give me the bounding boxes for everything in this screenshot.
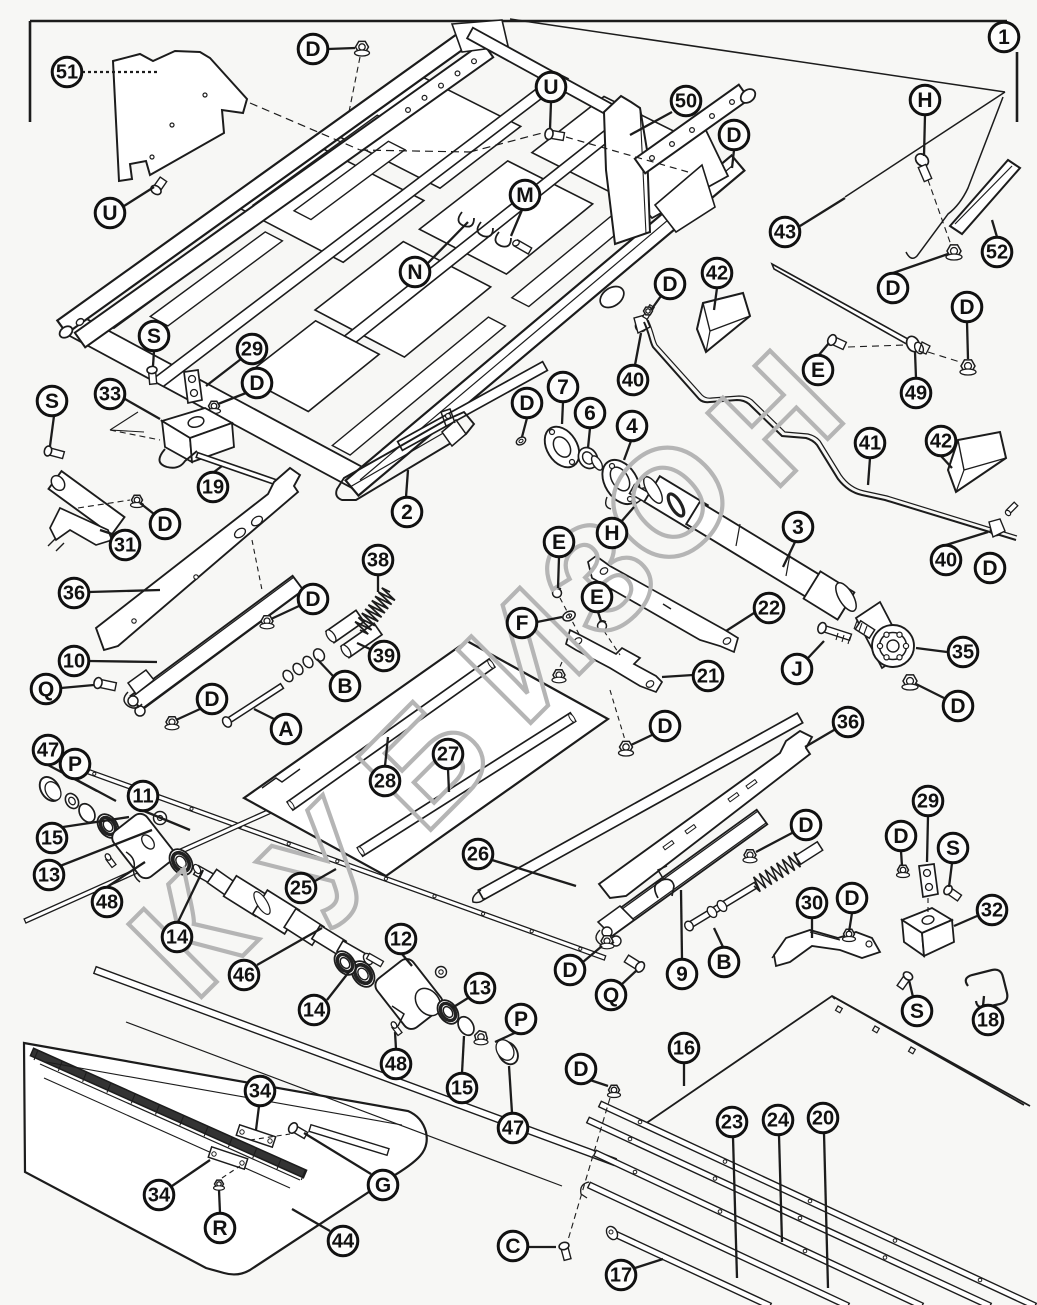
svg-text:D: D — [249, 372, 264, 395]
svg-text:D: D — [657, 715, 672, 738]
svg-text:48: 48 — [96, 892, 118, 914]
svg-text:B: B — [337, 675, 352, 698]
svg-text:35: 35 — [952, 642, 974, 664]
svg-text:13: 13 — [469, 978, 491, 1000]
svg-text:M: M — [516, 184, 534, 207]
svg-text:10: 10 — [63, 651, 85, 673]
svg-text:3: 3 — [792, 516, 804, 539]
svg-text:30: 30 — [801, 893, 823, 915]
svg-text:38: 38 — [367, 550, 389, 572]
svg-text:26: 26 — [467, 844, 489, 866]
svg-text:D: D — [204, 688, 219, 711]
svg-text:18: 18 — [977, 1010, 999, 1032]
svg-text:P: P — [68, 753, 82, 776]
svg-text:48: 48 — [385, 1054, 407, 1076]
svg-text:D: D — [157, 513, 172, 536]
svg-text:25: 25 — [290, 878, 312, 900]
svg-text:28: 28 — [374, 771, 396, 793]
svg-text:13: 13 — [38, 865, 60, 887]
svg-text:U: U — [102, 202, 117, 225]
svg-text:32: 32 — [981, 900, 1003, 922]
svg-text:27: 27 — [437, 744, 459, 766]
svg-text:40: 40 — [935, 550, 957, 572]
svg-text:39: 39 — [373, 646, 395, 668]
svg-text:15: 15 — [451, 1078, 473, 1100]
svg-text:2: 2 — [401, 501, 413, 524]
svg-text:J: J — [791, 658, 803, 681]
svg-text:47: 47 — [502, 1118, 524, 1140]
svg-text:33: 33 — [99, 384, 121, 406]
svg-text:12: 12 — [390, 929, 412, 951]
svg-text:D: D — [305, 38, 320, 61]
svg-text:41: 41 — [859, 433, 881, 455]
svg-text:D: D — [662, 273, 677, 296]
svg-text:34: 34 — [249, 1081, 272, 1103]
svg-text:14: 14 — [303, 1000, 326, 1022]
svg-text:29: 29 — [241, 339, 263, 361]
svg-text:34: 34 — [148, 1185, 171, 1207]
svg-text:17: 17 — [610, 1265, 632, 1287]
svg-text:D: D — [798, 814, 813, 837]
svg-text:20: 20 — [812, 1108, 834, 1130]
svg-text:S: S — [45, 390, 59, 413]
svg-text:B: B — [716, 951, 731, 974]
svg-text:4: 4 — [626, 415, 638, 438]
svg-text:D: D — [305, 588, 320, 611]
svg-text:N: N — [407, 261, 422, 284]
svg-text:D: D — [959, 296, 974, 319]
svg-text:23: 23 — [721, 1112, 743, 1134]
svg-text:H: H — [917, 89, 932, 112]
svg-text:E: E — [590, 586, 604, 609]
svg-text:D: D — [844, 887, 859, 910]
svg-text:16: 16 — [673, 1038, 695, 1060]
svg-text:44: 44 — [332, 1231, 355, 1253]
svg-text:S: S — [946, 837, 960, 860]
svg-text:C: C — [505, 1235, 520, 1258]
svg-text:Q: Q — [603, 984, 619, 1007]
svg-text:31: 31 — [114, 535, 136, 557]
svg-text:15: 15 — [41, 828, 63, 850]
svg-text:D: D — [982, 557, 997, 580]
svg-text:24: 24 — [767, 1110, 790, 1132]
svg-text:A: A — [278, 718, 293, 741]
svg-text:D: D — [573, 1058, 588, 1081]
svg-text:E: E — [552, 531, 566, 554]
svg-text:U: U — [543, 76, 558, 99]
svg-text:36: 36 — [837, 712, 859, 734]
svg-text:H: H — [604, 522, 619, 545]
svg-text:11: 11 — [132, 786, 153, 808]
svg-text:S: S — [147, 325, 161, 348]
svg-text:19: 19 — [202, 477, 224, 499]
svg-text:S: S — [910, 1000, 924, 1023]
svg-text:R: R — [212, 1217, 227, 1240]
svg-text:36: 36 — [63, 583, 85, 605]
svg-text:D: D — [726, 124, 741, 147]
svg-text:46: 46 — [233, 965, 255, 987]
svg-text:14: 14 — [166, 927, 189, 949]
svg-text:E: E — [811, 359, 825, 382]
svg-text:D: D — [519, 392, 534, 415]
svg-text:F: F — [516, 612, 529, 635]
svg-text:51: 51 — [56, 62, 78, 84]
svg-text:52: 52 — [986, 242, 1008, 264]
svg-text:G: G — [375, 1174, 391, 1197]
svg-text:D: D — [950, 695, 965, 718]
svg-text:D: D — [893, 825, 908, 848]
svg-text:7: 7 — [557, 376, 569, 399]
svg-text:Q: Q — [38, 678, 54, 701]
svg-text:D: D — [562, 959, 577, 982]
svg-text:40: 40 — [622, 370, 644, 392]
svg-text:42: 42 — [930, 431, 952, 453]
svg-text:21: 21 — [697, 666, 719, 688]
svg-text:50: 50 — [675, 91, 697, 113]
svg-text:9: 9 — [676, 963, 688, 986]
svg-text:49: 49 — [905, 383, 927, 405]
svg-text:22: 22 — [758, 598, 780, 620]
svg-text:29: 29 — [917, 791, 939, 813]
svg-text:D: D — [885, 277, 900, 300]
svg-text:P: P — [514, 1008, 528, 1031]
svg-text:47: 47 — [37, 740, 59, 762]
svg-text:1: 1 — [998, 26, 1010, 49]
svg-text:43: 43 — [774, 222, 796, 244]
svg-text:6: 6 — [584, 402, 596, 425]
svg-text:42: 42 — [706, 263, 728, 285]
